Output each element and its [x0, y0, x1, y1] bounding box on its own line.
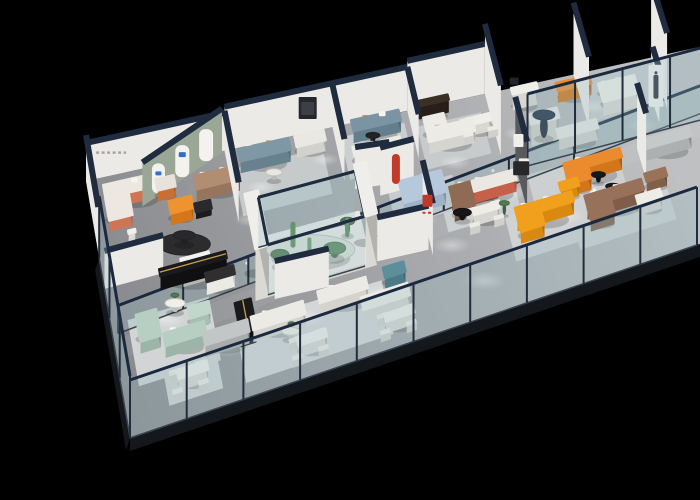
charcoal-tv-panel: [513, 161, 529, 175]
arch-opening-2: [175, 145, 189, 177]
coffee-table-dark-top: [173, 231, 195, 240]
round-table-bay2-top: [266, 169, 282, 176]
round-table-bay3-top: [366, 132, 380, 138]
brand-sign-blue-icon: [179, 152, 186, 157]
tv-screen-inner: [301, 102, 314, 115]
corner-room-table-top: [591, 172, 605, 178]
screenshot-root: 3D isometric furniture showroom floor-pl…: [0, 0, 700, 500]
spotlight-pool: [432, 237, 471, 254]
brand-sign-blue-small: [155, 171, 161, 175]
sofa-pillow: [131, 177, 138, 182]
red-curve-decor: [392, 154, 400, 184]
spotlight-pool: [439, 155, 471, 169]
sofa-white-small: [295, 130, 326, 158]
desk-monitor: [510, 78, 519, 85]
black-table-mid-top: [453, 208, 471, 216]
sofa-mint-1-top: [136, 309, 161, 342]
armchair-orange: [168, 196, 194, 226]
sofa-pillow: [379, 111, 386, 116]
red-logo-glyph: [423, 195, 433, 207]
gallery-frame-1: [513, 134, 523, 147]
armchair-left-white: [155, 175, 177, 201]
arch-opening-3: [199, 129, 213, 161]
showroom-render: [0, 0, 700, 500]
armchair-left-white-top: [156, 175, 176, 190]
plant-mid-top: [499, 201, 509, 206]
sofa-left-chaise-top: [105, 193, 132, 220]
floor-lamp-left-top: [128, 229, 135, 234]
sofa-left-chaise: [105, 193, 132, 231]
round-table-mint-top: [165, 299, 185, 308]
plant-mint-table-top: [171, 293, 179, 297]
